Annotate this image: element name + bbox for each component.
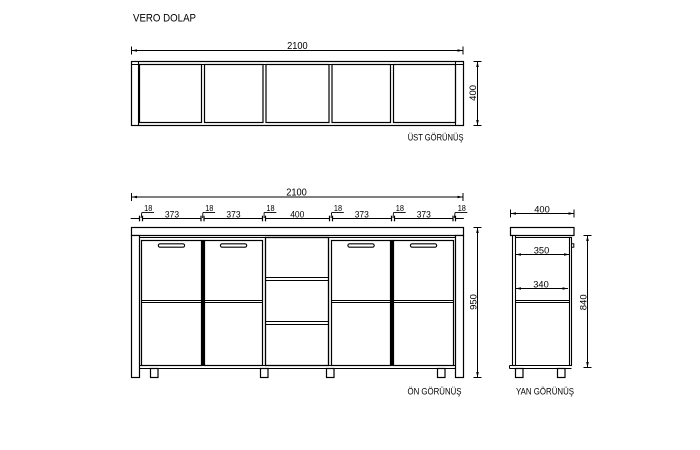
svg-text:YAN GÖRÜNÜŞ: YAN GÖRÜNÜŞ	[516, 387, 574, 397]
svg-text:350: 350	[534, 245, 550, 256]
svg-text:340: 340	[533, 279, 549, 290]
svg-text:400: 400	[468, 85, 479, 101]
svg-text:400: 400	[534, 204, 550, 215]
svg-text:950: 950	[468, 294, 479, 310]
svg-text:373: 373	[417, 209, 431, 219]
svg-text:18: 18	[334, 203, 342, 213]
svg-text:18: 18	[458, 203, 466, 213]
svg-text:2100: 2100	[287, 41, 308, 52]
svg-text:2100: 2100	[286, 188, 307, 199]
svg-text:373: 373	[165, 209, 179, 219]
svg-text:18: 18	[396, 203, 404, 213]
svg-text:ÜST GÖRÜNÜŞ: ÜST GÖRÜNÜŞ	[408, 133, 464, 143]
svg-text:373: 373	[355, 209, 369, 219]
svg-text:373: 373	[226, 209, 240, 219]
svg-text:18: 18	[266, 203, 274, 213]
svg-text:18: 18	[205, 203, 213, 213]
svg-text:ÖN GÖRÜNÜŞ: ÖN GÖRÜNÜŞ	[408, 387, 462, 397]
svg-text:840: 840	[579, 294, 590, 310]
svg-text:VERO DOLAP: VERO DOLAP	[133, 12, 196, 24]
svg-text:400: 400	[290, 209, 304, 219]
svg-text:18: 18	[144, 203, 152, 213]
